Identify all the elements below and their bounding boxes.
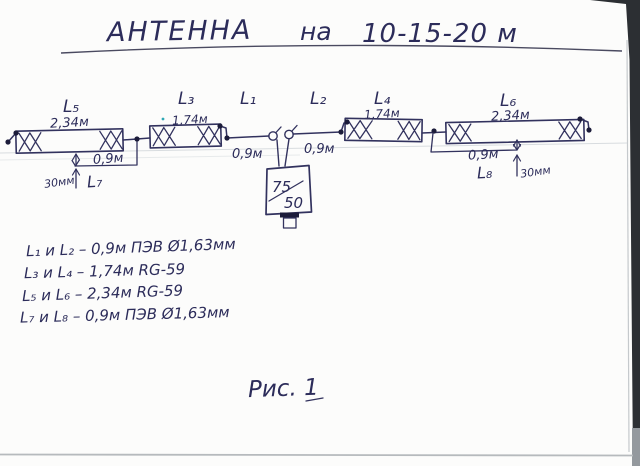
scan-edge-right: [590, 0, 640, 466]
stub-l8-offset: 30мм: [519, 163, 551, 180]
wire-l1-label: 0,9м: [232, 147, 263, 162]
element-l2-label: L₂: [310, 89, 326, 109]
element-l4-body: [345, 118, 422, 141]
element-l3-label: L₃: [178, 89, 194, 109]
element-l3-braid-marks: [153, 126, 220, 146]
paper-artifacts: [0, 0, 640, 466]
element-l3: L₃ 1,74м: [150, 89, 222, 148]
wire-l2-label: 0,9м: [304, 142, 335, 157]
legend-row-1: L₁ и L₂ – 0,9м ПЭВ Ø1,63мм: [26, 235, 236, 260]
element-l4-braid-marks: [348, 120, 420, 139]
legend-row-4: L₇ и L₈ – 0,9м ПЭВ Ø1,63мм: [20, 303, 230, 326]
balun: 75 50: [266, 166, 312, 229]
page-title-word-1: АНТЕННА: [105, 15, 253, 49]
stub-l7-offset: 30мм: [43, 174, 75, 191]
element-l5-braid-marks: [19, 131, 122, 151]
figure-caption-block: Рис. 1: [248, 375, 323, 403]
stub-l8-length: 0,9м: [468, 147, 499, 164]
element-l3-body: [150, 124, 222, 148]
balun-denominator: 50: [284, 194, 303, 212]
page-title-word-2: на: [300, 17, 332, 46]
legend: L₁ и L₂ – 0,9м ПЭВ Ø1,63мм L₃ и L₄ – 1,7…: [20, 235, 236, 327]
element-l6: L₆ 2,34м: [446, 91, 584, 144]
legend-row-2: L₃ и L₄ – 1,74м RG-59: [24, 260, 186, 282]
coax-connector-plug: [284, 218, 297, 228]
coax-connector-flange: [280, 213, 299, 218]
stub-l8-label: L₈: [476, 163, 493, 183]
element-l6-braid-marks: [449, 122, 581, 142]
element-l5-body: [16, 129, 123, 153]
feed-drop-wires: [277, 139, 289, 166]
stub-l7-label: L₇: [86, 171, 103, 191]
dimension-l8: 0,9м L₈ 30мм: [431, 133, 552, 182]
title-block: АНТЕННА на 10-15-20 м: [61, 15, 622, 53]
wire-l1: [227, 136, 269, 138]
wire-l2: [293, 132, 341, 134]
element-l5: L₅ 2,34м: [16, 97, 123, 153]
paper-edge-line: [627, 40, 629, 452]
ink-speck: [162, 118, 165, 121]
stub-l7-length: 0,9м: [93, 151, 125, 168]
element-l1-label: L₁: [240, 89, 256, 109]
legend-row-3: L₅ и L₆ – 2,34м RG-59: [22, 281, 184, 305]
page-title-word-3: 10-15-20 м: [362, 19, 518, 49]
element-l4: L₄ 1,74м: [345, 89, 422, 142]
figure-caption: Рис. 1: [248, 375, 320, 403]
scanned-sketch-page: АНТЕННА на 10-15-20 м L₅ 2,34м L₃ 1,74м …: [0, 0, 640, 466]
feedpoint: [269, 126, 297, 167]
antenna-sketch-svg: АНТЕННА на 10-15-20 м L₅ 2,34м L₃ 1,74м …: [0, 0, 640, 466]
scan-edge-bottom: [0, 455, 633, 456]
scan-edge-fade: [632, 428, 640, 466]
element-l5-label: L₅: [63, 97, 79, 117]
